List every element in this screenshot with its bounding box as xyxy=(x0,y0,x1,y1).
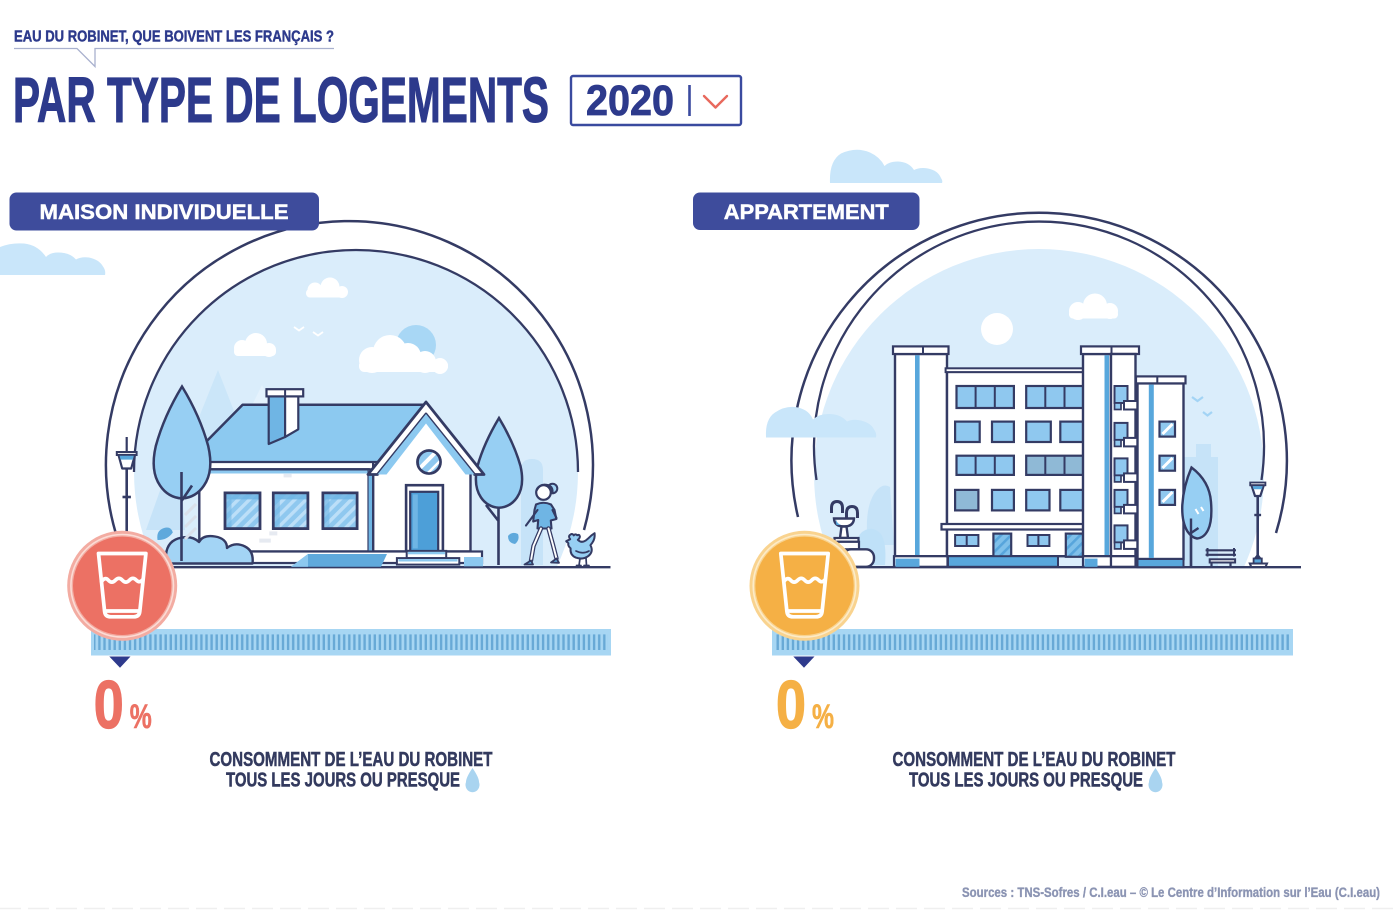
svg-text:%: % xyxy=(130,698,152,736)
svg-text:PAR TYPE DE LOGEMENTS: PAR TYPE DE LOGEMENTS xyxy=(13,64,549,136)
svg-text:CONSOMMENT DE L’EAU DU ROBINET: CONSOMMENT DE L’EAU DU ROBINET xyxy=(210,749,493,771)
svg-text:0: 0 xyxy=(94,667,124,743)
svg-text:CONSOMMENT DE L’EAU DU ROBINET: CONSOMMENT DE L’EAU DU ROBINET xyxy=(893,749,1176,771)
svg-text:MAISON INDIVIDUELLE: MAISON INDIVIDUELLE xyxy=(40,200,289,224)
svg-text:%: % xyxy=(812,698,834,736)
svg-text:Sources : TNS-Sofres / C.I.eau: Sources : TNS-Sofres / C.I.eau – © Le Ce… xyxy=(962,885,1380,900)
svg-text:TOUS LES JOURS OU PRESQUE: TOUS LES JOURS OU PRESQUE xyxy=(226,770,460,792)
svg-text:EAU DU ROBINET, QUE BOIVENT LE: EAU DU ROBINET, QUE BOIVENT LES FRANÇAIS… xyxy=(14,29,334,46)
svg-text:2020: 2020 xyxy=(586,77,674,125)
svg-text:APPARTEMENT: APPARTEMENT xyxy=(724,200,889,224)
svg-text:TOUS LES JOURS OU PRESQUE: TOUS LES JOURS OU PRESQUE xyxy=(909,770,1143,792)
svg-text:0: 0 xyxy=(776,667,806,743)
